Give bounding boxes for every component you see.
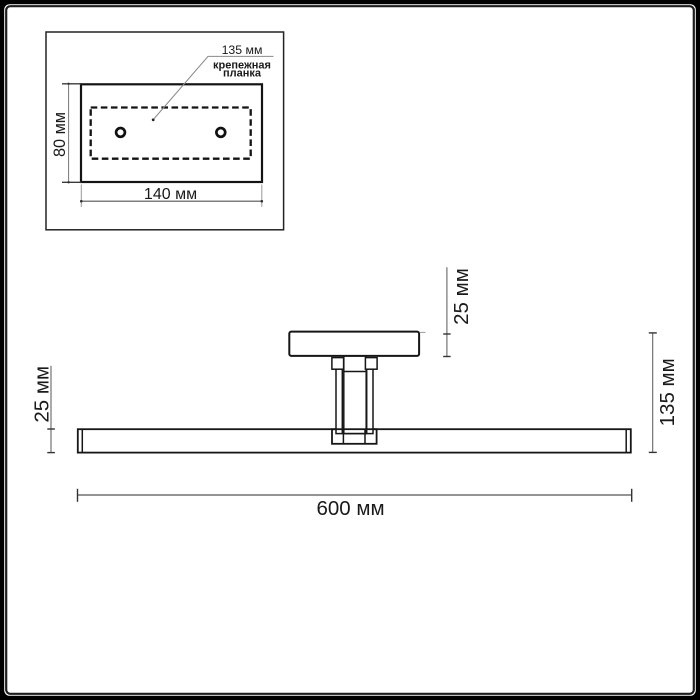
svg-text:135 мм: 135 мм <box>222 43 263 57</box>
svg-text:600 мм: 600 мм <box>316 497 384 520</box>
svg-text:80 мм: 80 мм <box>51 112 69 157</box>
svg-text:планка: планка <box>223 68 262 80</box>
svg-text:25 мм: 25 мм <box>450 268 473 325</box>
svg-text:135 мм: 135 мм <box>656 358 679 426</box>
svg-text:140 мм: 140 мм <box>144 186 197 203</box>
svg-text:25 мм: 25 мм <box>30 366 53 423</box>
